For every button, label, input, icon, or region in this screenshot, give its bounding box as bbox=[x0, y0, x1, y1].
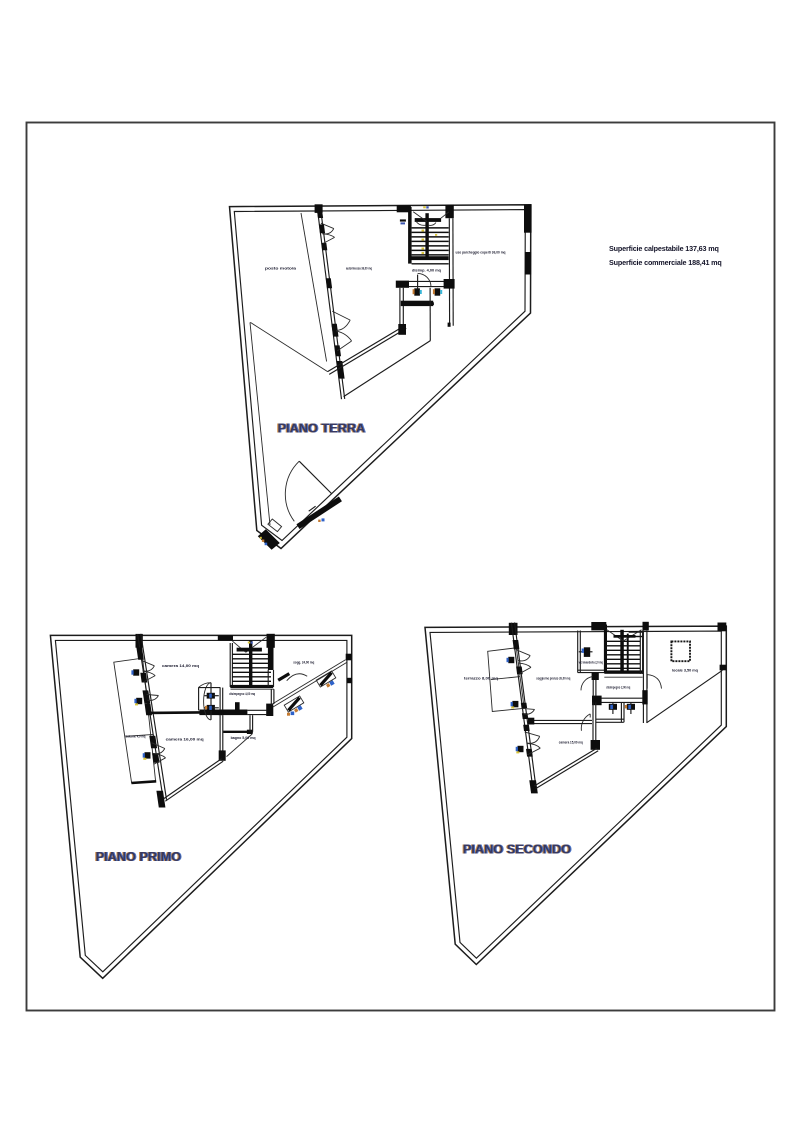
svg-text:Superficie calpestabile 137,6: Superficie calpestabile 137,63 mq bbox=[609, 244, 719, 253]
svg-text:locale 3,50 mq: locale 3,50 mq bbox=[672, 668, 699, 672]
svg-text:disimpegno 4,00 mq: disimpegno 4,00 mq bbox=[229, 692, 255, 696]
svg-text:terrazzo 8,00 mq: terrazzo 8,00 mq bbox=[464, 677, 499, 681]
svg-text:camera 15,00 mq: camera 15,00 mq bbox=[559, 740, 584, 744]
svg-text:PIANO TERRA: PIANO TERRA bbox=[278, 421, 366, 436]
svg-text:uso parcheggio coperti 36,00 m: uso parcheggio coperti 36,00 mq bbox=[456, 251, 507, 255]
svg-text:autorimessa 36,00 mq: autorimessa 36,00 mq bbox=[346, 267, 372, 271]
svg-text:soggiorno pranzo 26,00 mq: soggiorno pranzo 26,00 mq bbox=[536, 677, 570, 681]
svg-text:camera 14,00 mq: camera 14,00 mq bbox=[162, 664, 200, 668]
svg-text:posto moto/a: posto moto/a bbox=[265, 267, 297, 271]
svg-text:sogg. 24,00 mq: sogg. 24,00 mq bbox=[293, 661, 315, 665]
svg-text:camera 16,00 mq: camera 16,00 mq bbox=[166, 738, 205, 742]
svg-text:balcone 4,0 mq: balcone 4,0 mq bbox=[126, 734, 146, 738]
svg-text:disimpegno 2,00 mq: disimpegno 2,00 mq bbox=[606, 685, 630, 689]
svg-text:PIANO PRIMO: PIANO PRIMO bbox=[96, 849, 182, 864]
svg-text:disimp. 4,00 mq: disimp. 4,00 mq bbox=[412, 269, 442, 273]
svg-text:PIANO SECONDO: PIANO SECONDO bbox=[463, 842, 571, 857]
svg-text:wc lavanderia 2,0 mq: wc lavanderia 2,0 mq bbox=[578, 660, 603, 664]
svg-text:bagno 5,00 mq: bagno 5,00 mq bbox=[231, 736, 257, 740]
svg-text:Superficie commerciale 188,41: Superficie commerciale 188,41 mq bbox=[609, 258, 722, 267]
